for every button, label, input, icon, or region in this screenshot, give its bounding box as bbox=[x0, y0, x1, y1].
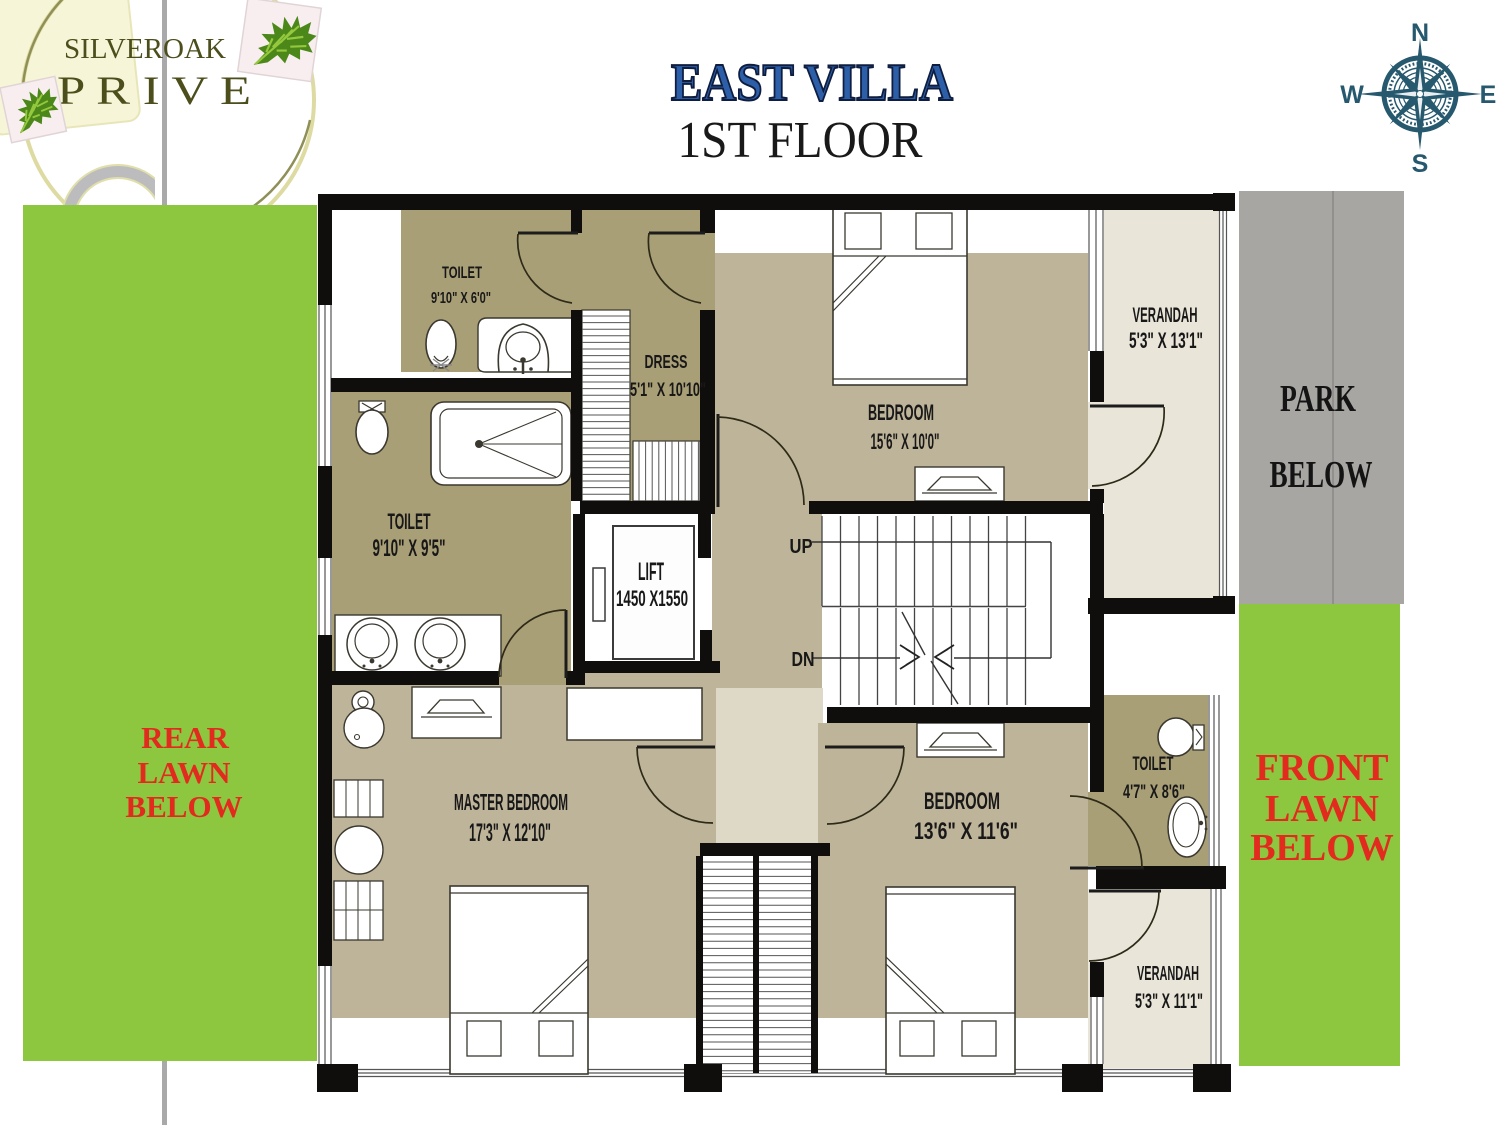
svg-text:TOILET: TOILET bbox=[442, 263, 482, 282]
svg-text:5'3" X 13'1": 5'3" X 13'1" bbox=[1129, 328, 1203, 353]
svg-text:DRESS: DRESS bbox=[645, 352, 688, 372]
svg-text:LIFT: LIFT bbox=[638, 558, 664, 586]
svg-text:BELOW: BELOW bbox=[1270, 454, 1373, 496]
svg-text:TOILET: TOILET bbox=[388, 509, 431, 534]
svg-text:N: N bbox=[1411, 19, 1429, 47]
svg-text:TOILET: TOILET bbox=[1133, 754, 1174, 775]
svg-text:FRONT: FRONT bbox=[1256, 747, 1389, 789]
svg-text:UP: UP bbox=[790, 536, 813, 558]
svg-text:5'1" X 10'10": 5'1" X 10'10" bbox=[630, 380, 706, 401]
svg-text:LAWN: LAWN bbox=[1265, 788, 1379, 830]
svg-text:1450 X1550: 1450 X1550 bbox=[616, 586, 688, 611]
svg-text:13'6" X 11'6": 13'6" X 11'6" bbox=[914, 818, 1018, 845]
svg-text:SILVEROAK: SILVEROAK bbox=[64, 33, 226, 65]
svg-text:VERANDAH: VERANDAH bbox=[1133, 304, 1198, 327]
svg-text:DN: DN bbox=[792, 649, 815, 671]
svg-text:MASTER BEDROOM: MASTER BEDROOM bbox=[454, 789, 568, 815]
svg-text:EAST VILLA: EAST VILLA bbox=[671, 54, 953, 112]
svg-text:4'7" X 8'6": 4'7" X 8'6" bbox=[1123, 782, 1185, 803]
svg-text:LAWN: LAWN bbox=[137, 755, 230, 790]
svg-text:REAR: REAR bbox=[141, 720, 229, 755]
svg-text:E: E bbox=[1480, 81, 1497, 109]
svg-text:5'3" X 11'1": 5'3" X 11'1" bbox=[1135, 990, 1203, 1013]
svg-text:BELOW: BELOW bbox=[1250, 827, 1394, 869]
svg-text:BELOW: BELOW bbox=[125, 789, 242, 824]
svg-text:1ST FLOOR: 1ST FLOOR bbox=[678, 112, 923, 169]
svg-text:VERANDAH: VERANDAH bbox=[1137, 963, 1199, 985]
svg-text:9'10" X 6'0": 9'10" X 6'0" bbox=[431, 290, 491, 307]
svg-text:BEDROOM: BEDROOM bbox=[924, 788, 1000, 815]
svg-text:P R I V E: P R I V E bbox=[57, 68, 251, 113]
svg-text:PARK: PARK bbox=[1280, 378, 1356, 420]
svg-text:BEDROOM: BEDROOM bbox=[868, 400, 934, 425]
svg-text:S: S bbox=[1412, 150, 1429, 178]
svg-text:15'6" X 10'0": 15'6" X 10'0" bbox=[871, 429, 940, 454]
svg-text:9'10" X 9'5": 9'10" X 9'5" bbox=[373, 535, 446, 562]
svg-text:W: W bbox=[1340, 81, 1364, 109]
svg-text:17'3" X 12'10": 17'3" X 12'10" bbox=[469, 819, 551, 847]
